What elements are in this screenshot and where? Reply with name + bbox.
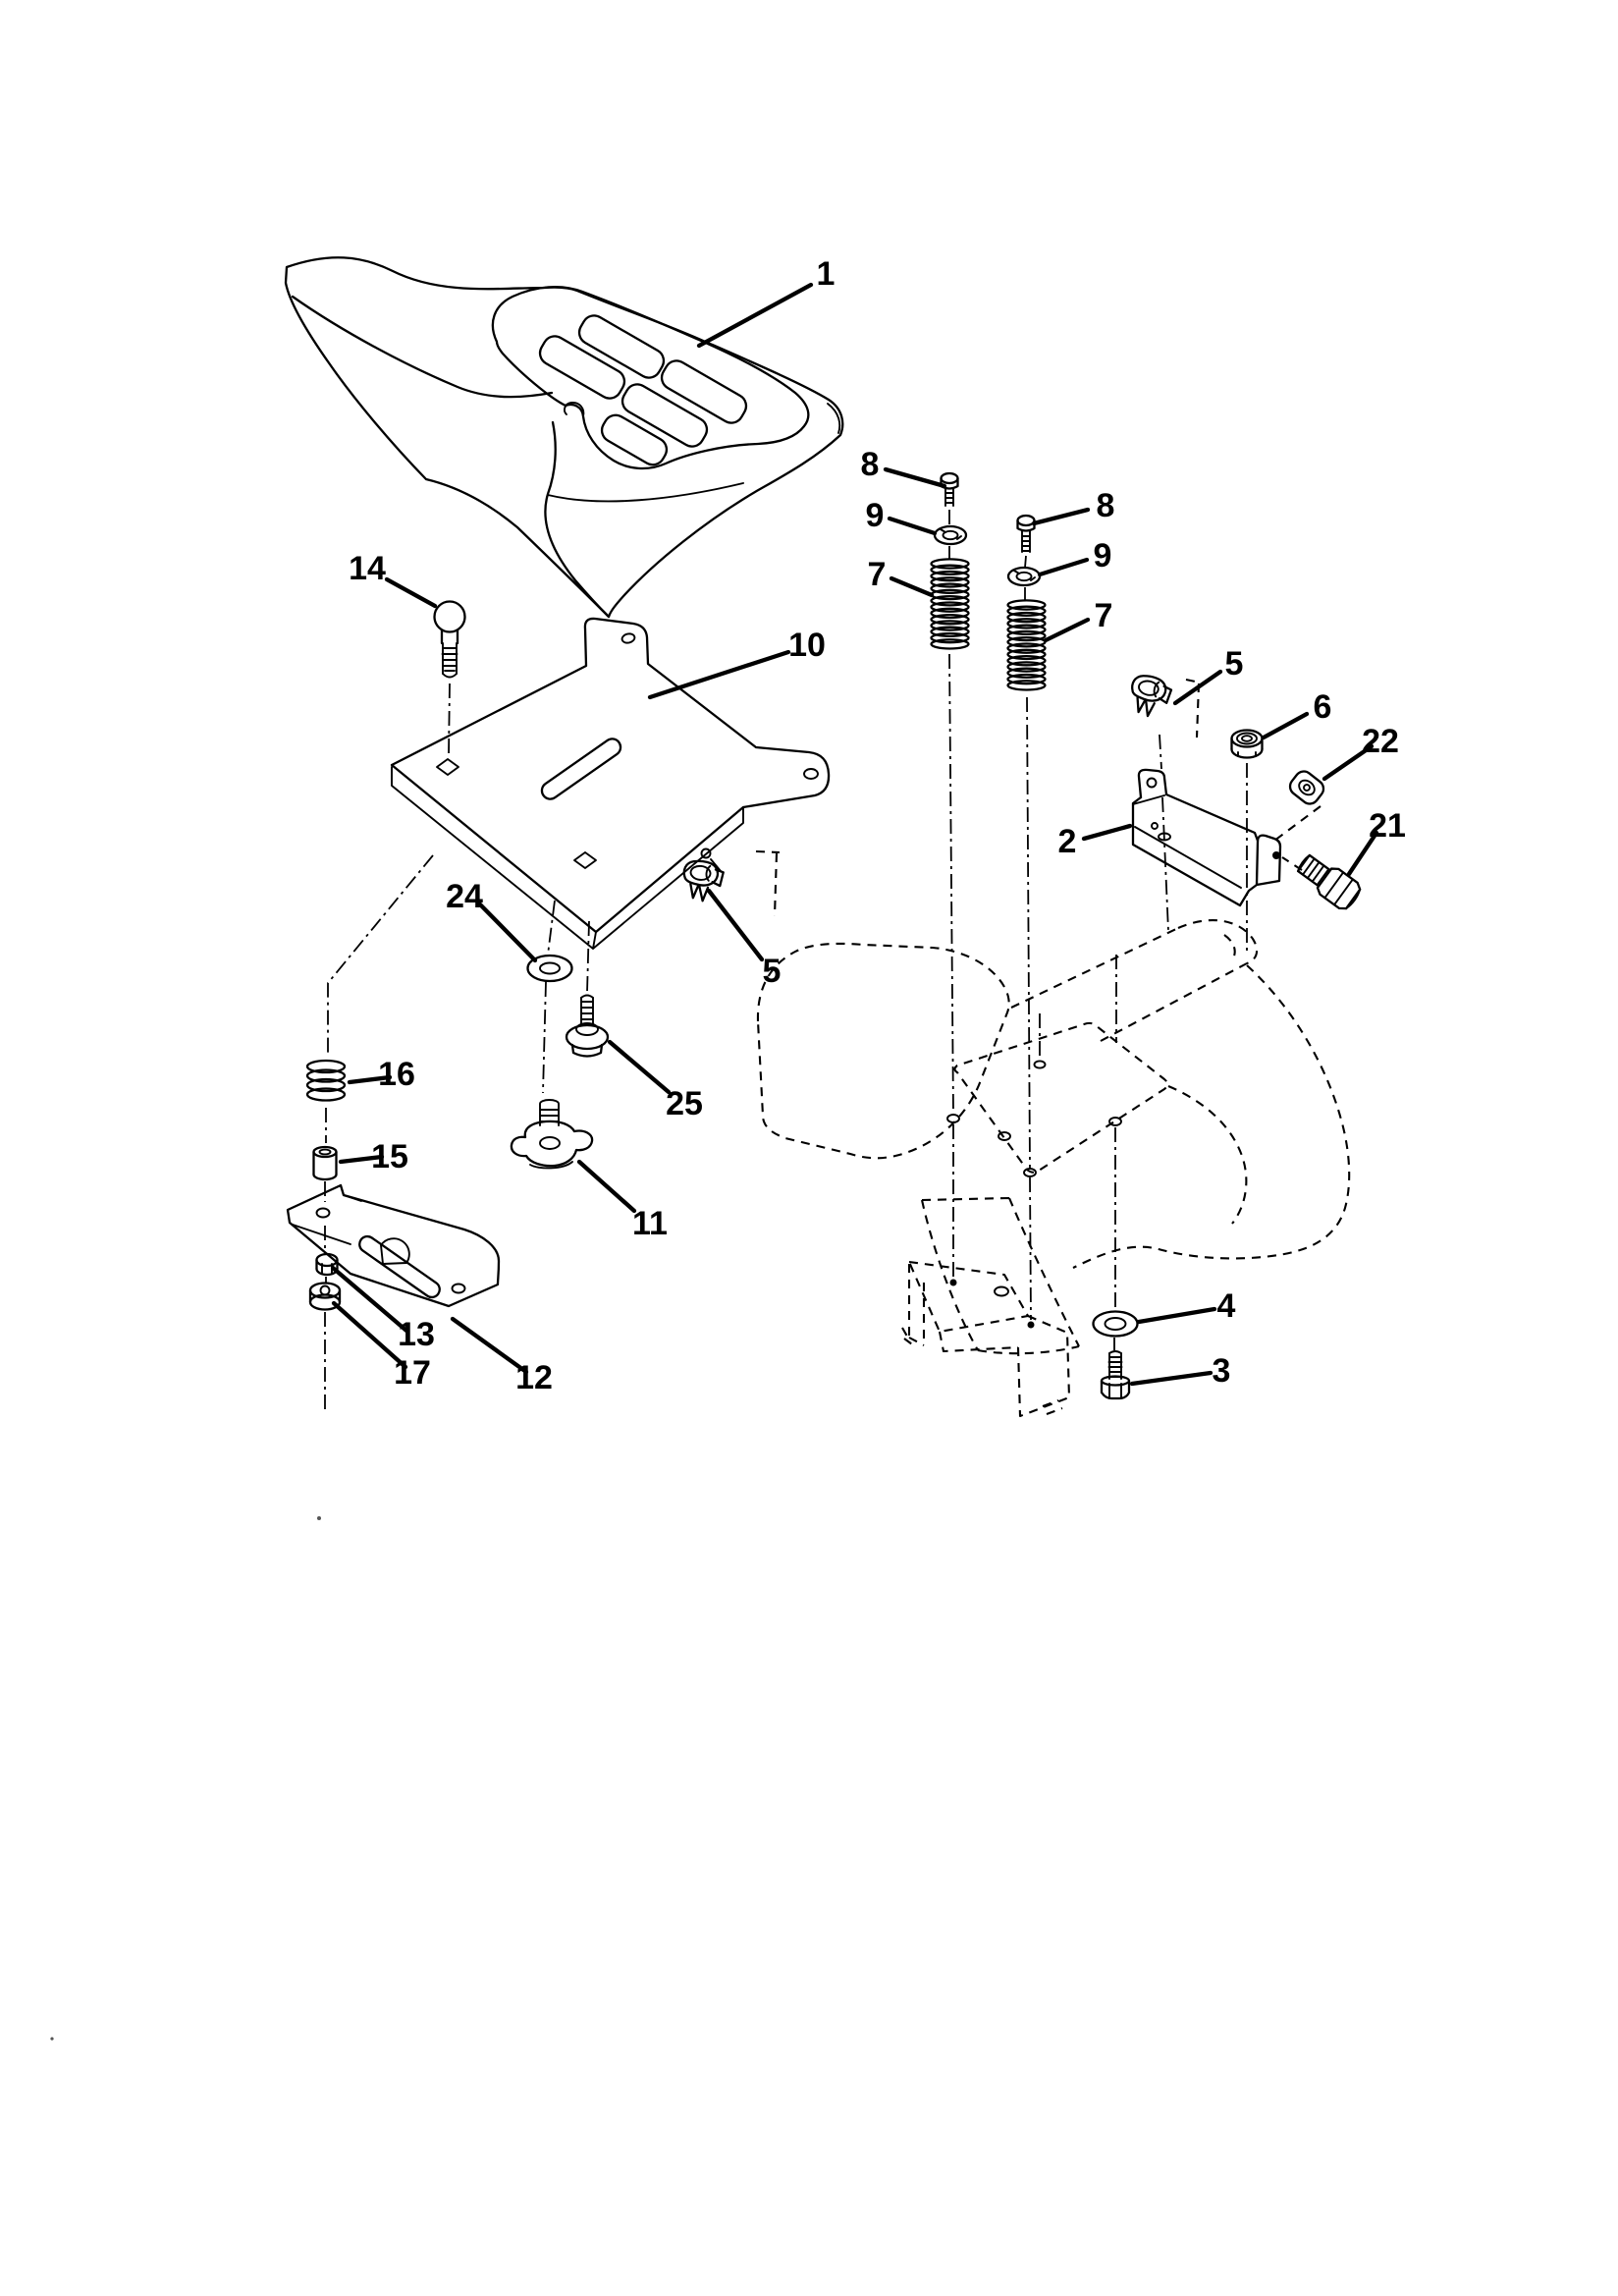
callout-11-leader [579, 1162, 634, 1211]
callout-6-label: 6 [1314, 688, 1332, 726]
callout-5-right-leader [1175, 672, 1220, 703]
callout-15-label: 15 [371, 1138, 408, 1175]
callout-5-left-leader [709, 891, 762, 959]
fender-lobe-inner [1168, 1086, 1246, 1224]
callout-7-left-label: 7 [868, 556, 887, 593]
callout-9-right-leader [1040, 560, 1087, 574]
callout-2-label: 2 [1058, 823, 1077, 860]
pan-square-hole-left [437, 759, 458, 775]
callout-7-right-leader [1046, 620, 1088, 640]
pan-arm-hole [804, 769, 818, 779]
switch-bracket-ghost [902, 1262, 1069, 1416]
callout-16-label: 16 [378, 1056, 415, 1093]
spring-7-right [1008, 600, 1046, 689]
seat-cushion-front-edge [548, 483, 743, 501]
leader-lines [333, 285, 1376, 1384]
print-speck [317, 1516, 321, 1520]
callout-24-label: 24 [446, 878, 483, 915]
shoulder-screw-25 [566, 996, 608, 1057]
callout-10-leader [650, 652, 788, 697]
shoulder-bolt-8-left [942, 473, 958, 506]
callout-25-leader [610, 1042, 669, 1092]
pan-ear-hole [621, 632, 636, 644]
fender-holes [947, 1061, 1121, 1176]
callout-7-left-leader [891, 578, 932, 595]
callout-3-leader [1132, 1373, 1211, 1384]
callout-24-leader [479, 903, 535, 960]
callout-4-label: 4 [1217, 1287, 1236, 1325]
callout-14-leader [387, 579, 435, 606]
seat-pan-lip [392, 767, 743, 949]
flange-nut-22 [1286, 768, 1326, 807]
retainer-clip-5-right [1127, 673, 1173, 719]
pan-adjust-slot [539, 736, 624, 802]
lock-washer-9-left [935, 526, 966, 544]
callout-1-leader [699, 285, 811, 346]
callout-9-left-label: 9 [866, 497, 885, 534]
callout-5-right-label: 5 [1225, 645, 1244, 683]
clip-slot-ghost-left [756, 851, 780, 916]
washer-4 [1094, 1312, 1138, 1337]
spacer-15 [314, 1147, 337, 1179]
seat-front-crease [545, 422, 609, 617]
callout-13-leader [333, 1268, 406, 1331]
callout-8-left-leader [886, 469, 944, 486]
callout-8-left-label: 8 [861, 446, 880, 483]
callout-10-label: 10 [788, 627, 826, 664]
callout-1-label: 1 [817, 255, 836, 293]
callout-22-label: 22 [1362, 723, 1399, 760]
seat-assembly-diagram: 1 14 10 8 9 7 8 9 7 5 6 22 2 21 5 24 25 … [0, 0, 1618, 2296]
callout-5-left-label: 5 [763, 953, 782, 990]
callout-12-label: 12 [515, 1359, 553, 1396]
adjuster-bracket-12 [288, 1185, 499, 1306]
seat-bracket-2 [1133, 770, 1280, 905]
callout-6-leader [1264, 714, 1307, 738]
callout-21-label: 21 [1369, 807, 1406, 845]
callout-17-label: 17 [394, 1354, 431, 1392]
bolt-3 [1102, 1351, 1129, 1398]
callout-11-label: 11 [632, 1205, 668, 1242]
carriage-bolt-14 [435, 602, 465, 678]
lock-nut-6 [1232, 731, 1263, 758]
fender-platform [955, 1023, 1168, 1173]
callout-2-leader [1084, 826, 1130, 839]
seat-left-crease [293, 297, 552, 397]
fender-left-wing [758, 944, 1009, 1158]
parts-diagram-page: 1 14 10 8 9 7 8 9 7 5 6 22 2 21 5 24 25 … [0, 0, 1618, 2296]
retainer-clip-5-left [681, 859, 725, 902]
callout-13-label: 13 [398, 1316, 435, 1353]
callout-3-label: 3 [1213, 1352, 1231, 1390]
print-speck [50, 2037, 53, 2040]
callout-4-leader [1139, 1309, 1214, 1322]
shoulder-bolt-8-right [1018, 516, 1035, 552]
callout-8-right-label: 8 [1097, 487, 1115, 524]
pan-square-hole-center [574, 852, 596, 868]
callout-8-right-leader [1034, 510, 1088, 523]
callout-9-left-leader [890, 519, 935, 533]
callout-14-label: 14 [349, 550, 386, 587]
lock-washer-9-right [1008, 568, 1040, 585]
callout-7-right-label: 7 [1095, 597, 1113, 634]
spring-16 [307, 1061, 345, 1101]
wing-knob-11 [512, 1100, 592, 1168]
shoulder-bolt-21 [1293, 849, 1364, 912]
callout-25-label: 25 [666, 1085, 703, 1122]
spring-7-left [932, 559, 969, 648]
fender-ghost [758, 920, 1349, 1416]
callout-9-right-label: 9 [1094, 537, 1112, 574]
fender-arm [1011, 920, 1257, 1041]
